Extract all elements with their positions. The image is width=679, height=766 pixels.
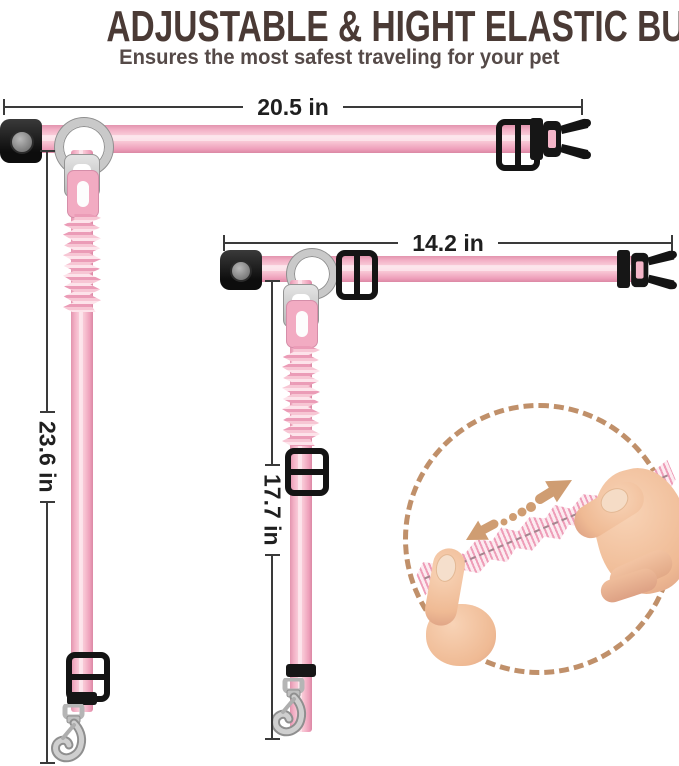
dimension-segment <box>46 152 48 411</box>
stretch-arrow-icon <box>452 468 582 554</box>
dimension-segment <box>271 282 273 464</box>
short-leash-triglide-slider <box>336 250 378 300</box>
dimension-label-long-horizontal: 20.5 in <box>257 94 329 121</box>
long-leash-tongue-sleeve <box>67 170 99 218</box>
dimension-tick <box>265 464 280 466</box>
short-leash-strap-band <box>286 664 316 677</box>
dimension-line-short-horizontal: 14.2 in <box>223 232 673 254</box>
page-title: ADJUSTABLE & HIGHT ELASTIC BUNGEE <box>106 2 679 52</box>
dimension-segment <box>343 106 581 108</box>
dimension-segment <box>225 242 398 244</box>
buckle-release-button <box>10 130 34 154</box>
long-leash-strap-band <box>530 118 543 160</box>
tongue-slot <box>77 181 89 207</box>
subheader: Ensures the most safest traveling for yo… <box>0 46 679 70</box>
long-leash-bungee-section <box>63 214 101 312</box>
dimension-line-long-horizontal: 20.5 in <box>3 96 583 118</box>
long-leash-snap-hook-icon <box>50 704 96 764</box>
dimension-segment <box>46 503 48 762</box>
dimension-tick <box>40 762 55 764</box>
product-infographic: ADJUSTABLE & HIGHT ELASTIC BUNGEE Ensure… <box>0 0 679 766</box>
dimension-line-short-vertical: 17.7 in <box>264 280 280 740</box>
dimension-label-long-vertical: 23.6 in <box>34 421 61 493</box>
buckle-release-button <box>230 260 252 282</box>
long-leash-release-buckle <box>0 119 42 163</box>
dimension-label-short-vertical: 17.7 in <box>259 474 286 546</box>
short-leash-clip-buckle-icon <box>631 249 679 291</box>
dimension-tick <box>40 411 55 413</box>
header: ADJUSTABLE & HIGHT ELASTIC BUNGEE <box>0 2 679 52</box>
long-leash-clip-buckle-icon <box>543 117 593 161</box>
short-leash-bungee-section <box>282 346 320 446</box>
dimension-segment <box>271 556 273 738</box>
short-leash-tongue-sleeve <box>286 300 318 348</box>
tongue-slot <box>296 311 308 337</box>
dimension-tick <box>581 99 583 115</box>
short-leash-length-adjuster <box>285 448 329 496</box>
dimension-segment <box>498 242 671 244</box>
short-leash-release-buckle <box>220 250 262 290</box>
dimension-label-short-horizontal: 14.2 in <box>412 230 484 257</box>
dimension-segment <box>5 106 243 108</box>
dimension-line-long-vertical: 23.6 in <box>39 150 55 764</box>
page-subtitle: Ensures the most safest traveling for yo… <box>119 46 559 70</box>
short-leash-strap-band <box>617 250 630 288</box>
dimension-tick <box>265 738 280 740</box>
